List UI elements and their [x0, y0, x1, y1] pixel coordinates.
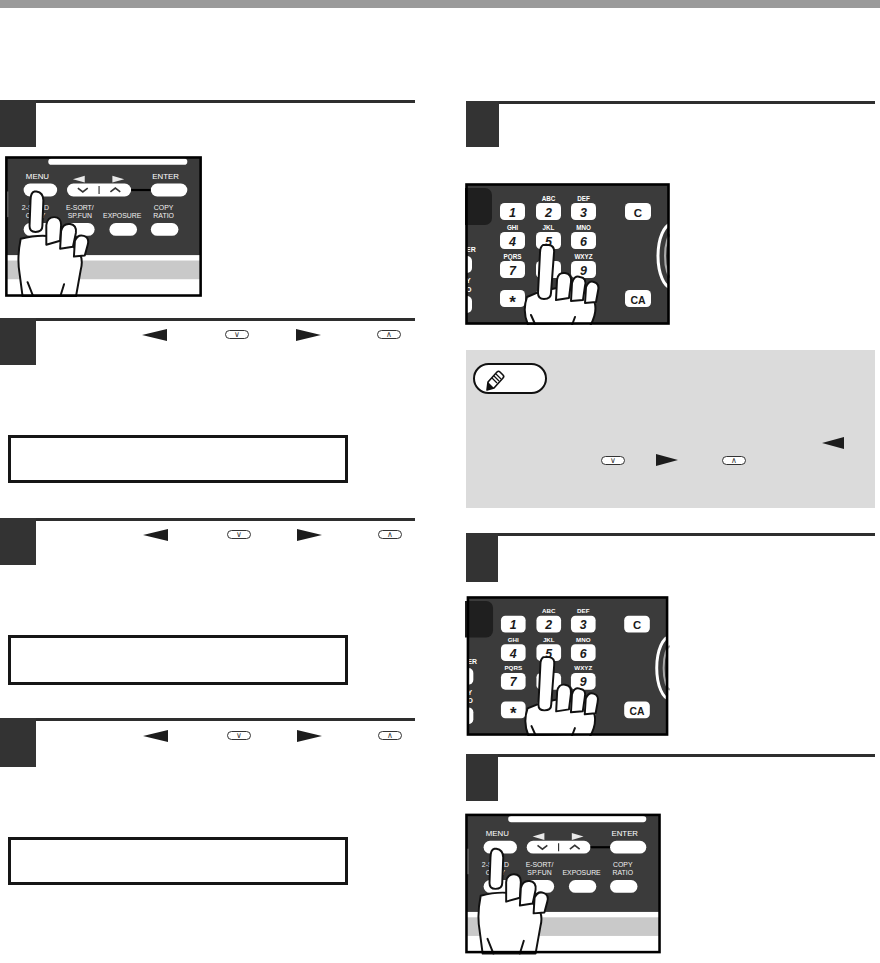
menu-panel-illustration-2 — [465, 810, 661, 957]
left-arrow-icon — [143, 529, 168, 541]
manual-page: ∨ ∧ ∨ ∧ ∨ ∧ ∨ ∧ — [0, 0, 880, 963]
lcd-display-box-2 — [8, 635, 348, 685]
step-rule — [0, 718, 415, 721]
menu-panel-illustration-1 — [4, 156, 203, 297]
step-rule — [0, 518, 415, 521]
step-number-box-2 — [0, 318, 36, 365]
right-arrow-icon — [656, 454, 678, 466]
step-rule — [466, 101, 875, 104]
page-header-bar — [0, 0, 880, 8]
note-badge — [473, 363, 547, 394]
step-number-box-1 — [0, 100, 36, 147]
up-key-icon: ∧ — [378, 731, 402, 740]
right-arrow-icon — [296, 329, 321, 341]
keypad-illustration-2 — [465, 596, 670, 736]
left-arrow-icon — [142, 329, 167, 341]
pencil-icon — [483, 366, 509, 392]
step-number-box-3 — [0, 518, 36, 565]
down-key-icon: ∨ — [227, 731, 251, 740]
step-number-box-5 — [466, 101, 499, 147]
right-arrow-icon — [297, 529, 322, 541]
step-rule — [0, 100, 415, 103]
keypad-illustration-1 — [465, 183, 670, 325]
note-box: ∨ ∧ — [466, 350, 875, 508]
lcd-display-box-3 — [8, 837, 348, 885]
step-rule — [0, 318, 415, 321]
lcd-display-box-1 — [8, 435, 348, 483]
up-key-icon: ∧ — [378, 530, 402, 539]
right-arrow-icon — [297, 730, 322, 742]
left-arrow-icon — [143, 730, 168, 742]
down-key-icon: ∨ — [601, 456, 625, 465]
step-rule — [466, 533, 875, 536]
step-number-box-7 — [466, 754, 498, 801]
step-number-box-4 — [0, 718, 36, 767]
step-number-box-6 — [466, 533, 498, 582]
down-key-icon: ∨ — [227, 530, 251, 539]
down-key-icon: ∨ — [225, 330, 249, 339]
step-rule — [466, 754, 875, 757]
up-key-icon: ∧ — [722, 456, 746, 465]
left-arrow-icon — [822, 437, 844, 449]
up-key-icon: ∧ — [377, 330, 401, 339]
